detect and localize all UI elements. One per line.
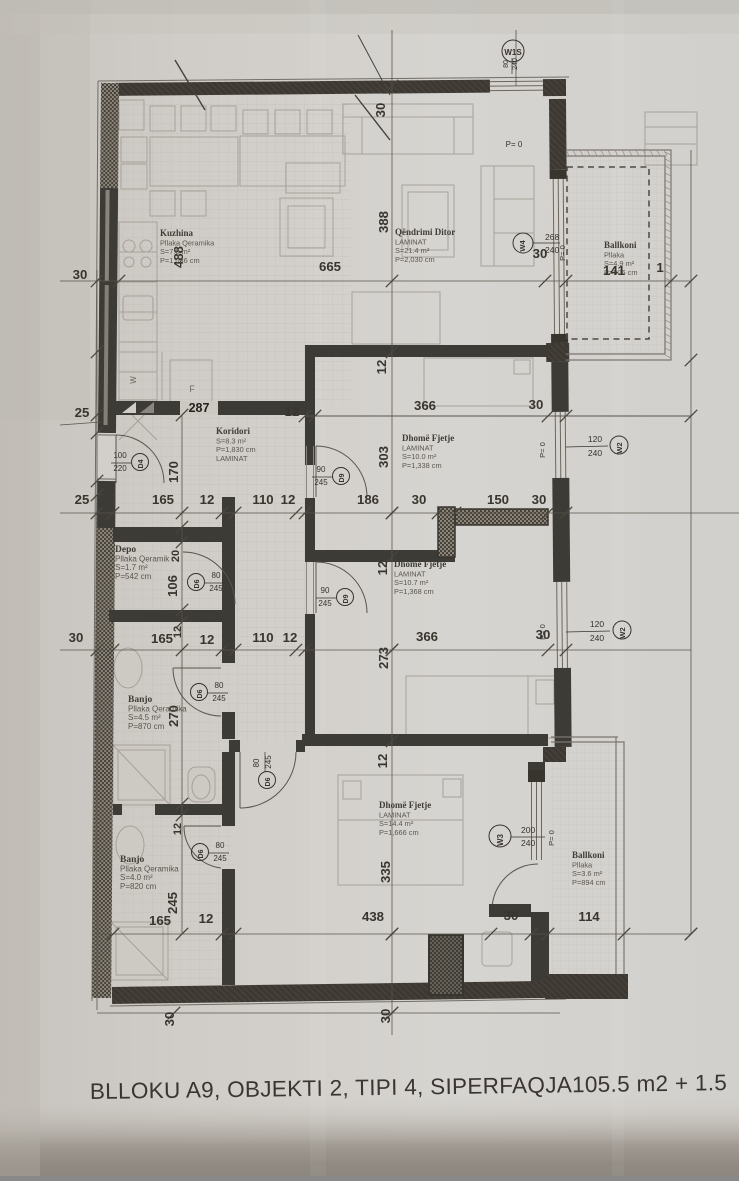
svg-text:P= 0: P= 0 xyxy=(558,245,567,261)
svg-text:240: 240 xyxy=(512,58,519,70)
svg-text:1: 1 xyxy=(656,260,663,275)
svg-text:P=1,338 cm: P=1,338 cm xyxy=(402,461,442,470)
svg-text:W1S: W1S xyxy=(504,48,522,57)
svg-text:30: 30 xyxy=(529,397,544,412)
svg-text:12: 12 xyxy=(283,630,298,645)
svg-text:30: 30 xyxy=(412,492,427,507)
svg-text:25: 25 xyxy=(75,492,90,507)
svg-text:287: 287 xyxy=(189,401,210,415)
svg-text:P= 0: P= 0 xyxy=(547,830,556,846)
svg-text:30: 30 xyxy=(69,630,84,645)
svg-text:P=870 cm: P=870 cm xyxy=(128,722,165,731)
svg-text:LAMINAT: LAMINAT xyxy=(216,454,248,463)
svg-text:D4: D4 xyxy=(138,459,145,468)
svg-text:P=542 cm: P=542 cm xyxy=(115,572,152,581)
svg-text:Qëndrimi Ditor: Qëndrimi Ditor xyxy=(395,227,455,237)
svg-text:Ballkoni: Ballkoni xyxy=(604,240,637,250)
svg-text:120: 120 xyxy=(590,619,604,629)
svg-text:106: 106 xyxy=(165,575,180,597)
svg-text:100: 100 xyxy=(113,451,127,460)
svg-text:80: 80 xyxy=(216,841,225,850)
svg-text:80: 80 xyxy=(215,681,224,690)
svg-text:D9: D9 xyxy=(339,473,346,482)
svg-text:273: 273 xyxy=(376,647,391,669)
svg-text:12: 12 xyxy=(375,754,390,769)
svg-text:120: 120 xyxy=(588,434,602,444)
svg-text:12: 12 xyxy=(200,632,215,647)
svg-text:165: 165 xyxy=(149,913,171,928)
svg-text:80: 80 xyxy=(212,571,221,580)
svg-text:30: 30 xyxy=(373,103,388,118)
svg-text:366: 366 xyxy=(416,629,438,644)
svg-text:165: 165 xyxy=(151,631,173,646)
svg-text:665: 665 xyxy=(319,259,341,274)
svg-text:W2: W2 xyxy=(618,627,627,638)
svg-text:P=820 cm: P=820 cm xyxy=(120,882,157,891)
svg-text:12: 12 xyxy=(200,492,215,507)
svg-text:186: 186 xyxy=(357,492,379,507)
svg-text:220: 220 xyxy=(113,464,127,473)
svg-text:D6: D6 xyxy=(197,689,204,698)
svg-text:366: 366 xyxy=(414,398,436,413)
svg-text:12: 12 xyxy=(375,561,390,576)
svg-text:20: 20 xyxy=(170,550,182,562)
svg-text:303: 303 xyxy=(376,446,391,468)
svg-text:P= 0: P= 0 xyxy=(538,624,547,640)
svg-text:Dhomë Fjetje: Dhomë Fjetje xyxy=(379,800,431,810)
svg-text:30: 30 xyxy=(378,1009,393,1024)
svg-text:P=894 cm: P=894 cm xyxy=(572,878,605,887)
svg-text:30: 30 xyxy=(504,908,519,923)
svg-text:D6: D6 xyxy=(194,579,201,588)
svg-text:P= 0: P= 0 xyxy=(506,140,523,149)
svg-text:Koridori: Koridori xyxy=(216,426,250,436)
svg-text:P= 0: P= 0 xyxy=(538,442,547,458)
svg-text:P=1,368 cm: P=1,368 cm xyxy=(394,587,434,596)
svg-text:P=2,030 cm: P=2,030 cm xyxy=(395,255,435,264)
svg-text:W: W xyxy=(129,376,138,384)
svg-text:30: 30 xyxy=(532,492,547,507)
svg-text:141: 141 xyxy=(603,263,625,278)
svg-text:12: 12 xyxy=(374,360,389,375)
svg-text:245: 245 xyxy=(212,694,226,703)
svg-text:Banjo: Banjo xyxy=(128,695,153,705)
svg-text:D9: D9 xyxy=(343,594,350,603)
svg-text:Depo: Depo xyxy=(115,545,136,555)
svg-text:388: 388 xyxy=(376,211,391,233)
svg-text:F: F xyxy=(189,384,195,394)
svg-text:12: 12 xyxy=(199,911,214,926)
svg-text:25: 25 xyxy=(75,405,90,420)
svg-text:240: 240 xyxy=(521,838,535,848)
svg-text:Kuzhina: Kuzhina xyxy=(160,228,194,238)
svg-text:30: 30 xyxy=(73,267,88,282)
svg-text:438: 438 xyxy=(362,909,384,924)
svg-text:Dhomë Fjetje: Dhomë Fjetje xyxy=(394,559,446,569)
svg-text:245: 245 xyxy=(318,599,332,608)
svg-text:110: 110 xyxy=(252,492,273,507)
svg-text:Dhomë Fjetje: Dhomë Fjetje xyxy=(402,433,454,443)
svg-text:110: 110 xyxy=(252,630,273,645)
svg-text:90: 90 xyxy=(321,586,330,595)
svg-text:245: 245 xyxy=(165,892,180,914)
svg-text:200: 200 xyxy=(521,825,535,835)
svg-text:12: 12 xyxy=(172,626,184,638)
svg-text:12: 12 xyxy=(172,823,184,835)
svg-text:12: 12 xyxy=(281,492,296,507)
svg-text:165: 165 xyxy=(152,492,174,507)
svg-text:245: 245 xyxy=(314,478,328,487)
svg-text:D6: D6 xyxy=(198,849,205,858)
svg-text:90: 90 xyxy=(317,465,326,474)
svg-text:80: 80 xyxy=(252,758,261,767)
svg-text:245: 245 xyxy=(209,584,223,593)
svg-text:W4: W4 xyxy=(518,240,527,252)
svg-text:Banjo: Banjo xyxy=(120,855,145,865)
svg-text:245: 245 xyxy=(213,854,227,863)
svg-text:170: 170 xyxy=(166,461,181,483)
svg-text:P=1,666 cm: P=1,666 cm xyxy=(379,828,419,837)
svg-text:W3: W3 xyxy=(496,833,505,846)
svg-text:D6: D6 xyxy=(265,777,272,786)
svg-text:335: 335 xyxy=(378,861,393,883)
svg-text:12: 12 xyxy=(285,404,300,419)
svg-text:30: 30 xyxy=(162,1012,177,1027)
svg-text:150: 150 xyxy=(487,492,509,507)
svg-text:240: 240 xyxy=(588,448,602,458)
svg-text:268: 268 xyxy=(545,232,559,242)
svg-text:W2: W2 xyxy=(615,442,624,453)
svg-text:114: 114 xyxy=(578,909,600,924)
svg-text:P=1,036 cm: P=1,036 cm xyxy=(160,256,200,265)
svg-text:240: 240 xyxy=(590,633,604,643)
svg-text:Ballkoni: Ballkoni xyxy=(572,850,605,860)
svg-text:80: 80 xyxy=(503,60,510,68)
